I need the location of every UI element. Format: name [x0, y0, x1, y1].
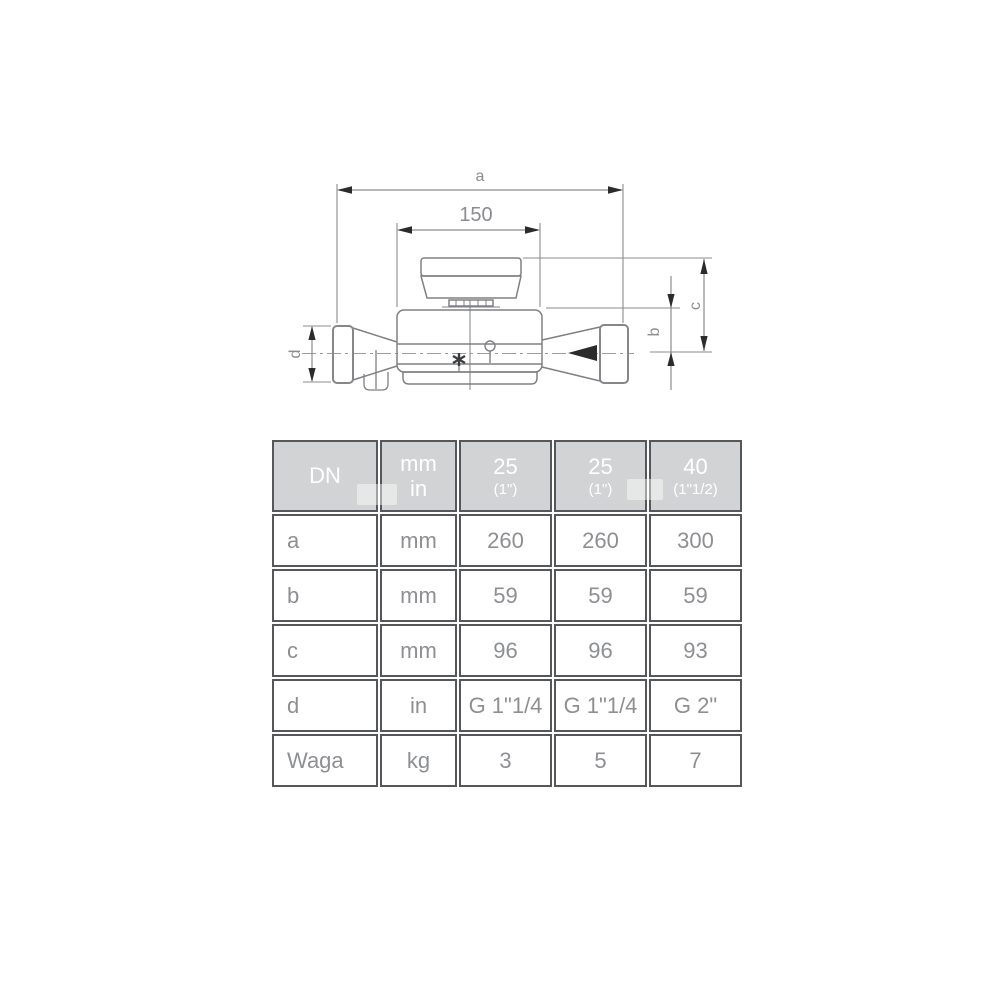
row-label: a — [272, 514, 378, 567]
dim-label-a: a — [476, 168, 485, 185]
table-header-row: DN mm in 25 (1") 25 (1") 40 (1"1/2) — [272, 440, 742, 512]
header-dn: DN — [272, 440, 378, 512]
cell-value: 260 — [554, 514, 647, 567]
row-unit: in — [380, 679, 457, 732]
cell-value: G 2" — [649, 679, 742, 732]
dim-label-150: 150 — [459, 204, 492, 226]
row-label: Waga — [272, 734, 378, 787]
cell-value: 5 — [554, 734, 647, 787]
cell-value: 59 — [554, 569, 647, 622]
table-row-waga: Waga kg 3 5 7 — [272, 734, 742, 787]
header-size-25b: 25 (1") — [554, 440, 647, 512]
row-unit: mm — [380, 624, 457, 677]
header-size-25a: 25 (1") — [459, 440, 552, 512]
dim-label-b: b — [646, 327, 663, 336]
cell-value: G 1"1/4 — [554, 679, 647, 732]
row-unit: kg — [380, 734, 457, 787]
spec-table: DN mm in 25 (1") 25 (1") 40 (1"1/2) a mm… — [270, 438, 744, 789]
flow-direction-arrow-icon — [568, 345, 597, 361]
header-unit-mm: mm — [383, 451, 454, 476]
cell-value: 59 — [649, 569, 742, 622]
row-label: c — [272, 624, 378, 677]
dim-label-c: c — [687, 302, 704, 310]
table-row-d: d in G 1"1/4 G 1"1/4 G 2" — [272, 679, 742, 732]
cell-value: 7 — [649, 734, 742, 787]
left-coupling-nut — [333, 326, 353, 383]
cell-value: 260 — [459, 514, 552, 567]
cell-value: 96 — [459, 624, 552, 677]
cell-value: 93 — [649, 624, 742, 677]
row-unit: mm — [380, 514, 457, 567]
cell-value: 96 — [554, 624, 647, 677]
header-size-40: 40 (1"1/2) — [649, 440, 742, 512]
header-unit-in: in — [383, 476, 454, 501]
meter-body — [397, 300, 542, 390]
dimension-150: 150 — [397, 204, 540, 307]
row-label: d — [272, 679, 378, 732]
table-row-b: b mm 59 59 59 — [272, 569, 742, 622]
cell-value: 3 — [459, 734, 552, 787]
table-row-c: c mm 96 96 93 — [272, 624, 742, 677]
cell-value: 300 — [649, 514, 742, 567]
row-label: b — [272, 569, 378, 622]
header-unit: mm in — [380, 440, 457, 512]
cell-value: 59 — [459, 569, 552, 622]
table-row-a: a mm 260 260 300 — [272, 514, 742, 567]
row-unit: mm — [380, 569, 457, 622]
seal-mark — [453, 353, 465, 372]
cell-value: G 1"1/4 — [459, 679, 552, 732]
counter-register — [421, 258, 521, 307]
dim-label-d: d — [287, 350, 304, 359]
